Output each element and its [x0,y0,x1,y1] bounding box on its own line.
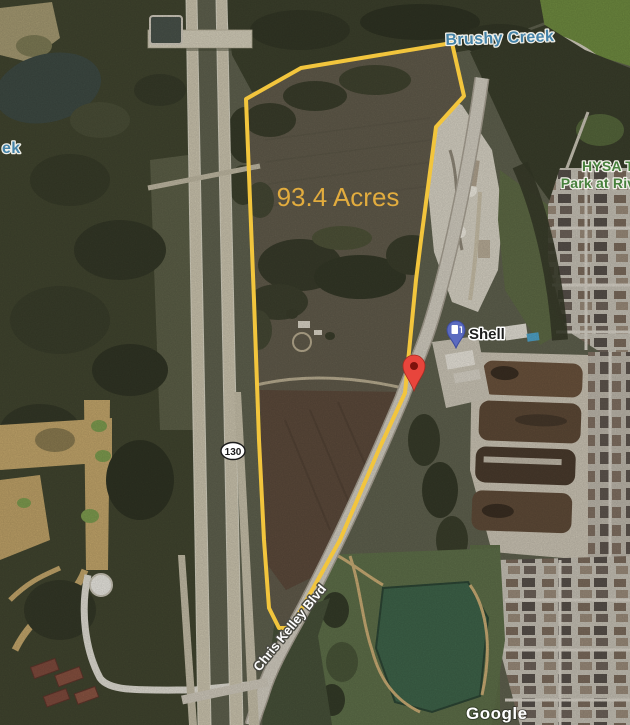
gas-station-label[interactable]: Shell [469,326,505,343]
map-viewport: 130 Brushy Creek ek HYSA T Park at Riv 9… [0,0,630,725]
highway-shield-130: 130 [221,443,245,460]
creek-label-partial: ek [2,140,21,157]
park-label-line1[interactable]: HYSA T [582,158,630,174]
park-label-line2[interactable]: Park at Riv [561,175,630,191]
pin-center-dot [410,362,418,370]
noise-texture [0,0,630,725]
google-watermark: Google [466,704,528,723]
satellite-map[interactable]: 130 Brushy Creek ek HYSA T Park at Riv 9… [0,0,630,725]
highway-shield-label: 130 [225,447,242,458]
acreage-label: 93.4 Acres [277,182,400,212]
